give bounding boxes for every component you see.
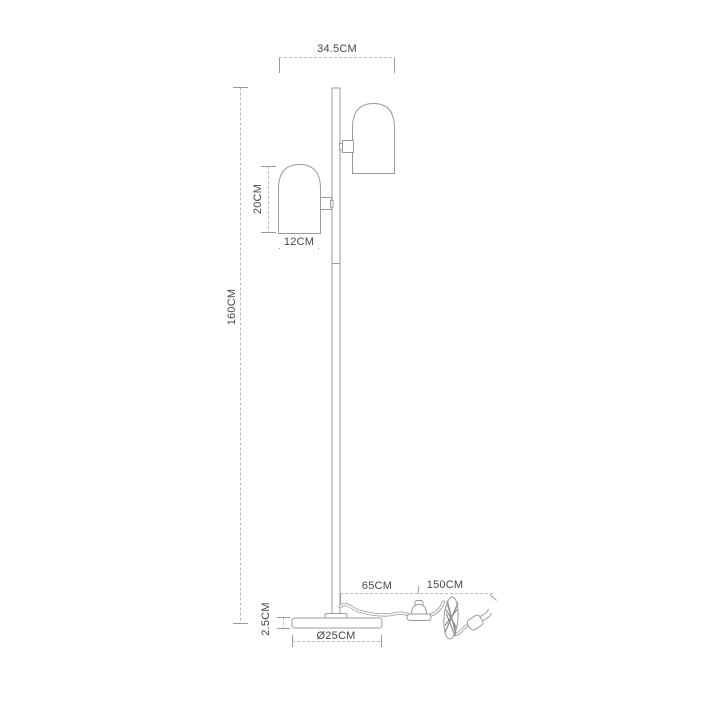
dim-label-base-height: 2.5CM: [260, 594, 272, 644]
switch-base: [407, 614, 431, 621]
dim-label-cord-65: 65CM: [347, 580, 407, 592]
foot-switch: [407, 601, 431, 621]
plug-body: [466, 614, 484, 632]
dim-label-base-diameter: Ø25CM: [296, 630, 376, 642]
switch-dome: [412, 605, 427, 615]
dim-label-shade-width: 12CM: [269, 236, 329, 248]
upper-shade: [353, 104, 395, 174]
dim-label-cord-150: 150CM: [415, 579, 475, 591]
dim-label-shade-height: 20CM: [252, 174, 264, 224]
dim-label-top-width: 34.5CM: [279, 43, 395, 55]
upper-shade-bracket: [340, 141, 354, 153]
lamp-base: [292, 618, 382, 628]
lamp-line-art: [0, 0, 715, 715]
dim-label-total-height: 160CM: [226, 277, 238, 337]
lower-shade-bracket: [321, 198, 334, 210]
diagram-canvas: 34.5CM 160CM 20CM 12CM 2.5CM Ø25CM 65CM …: [0, 0, 715, 715]
lower-shade: [279, 165, 321, 234]
power-plug: [466, 608, 494, 632]
lamp-pole: [325, 88, 347, 619]
